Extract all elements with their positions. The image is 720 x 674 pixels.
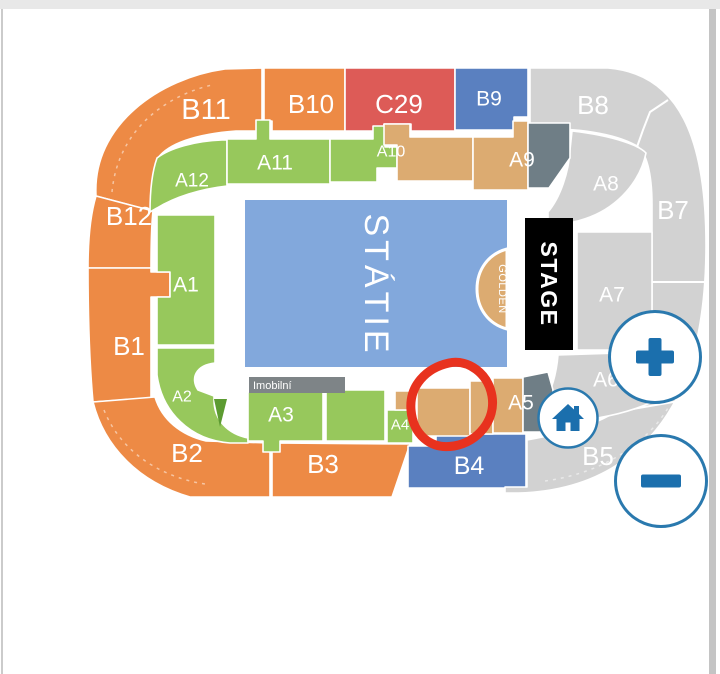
section-label-b4: B4 bbox=[454, 452, 485, 480]
section-label-b11: B11 bbox=[181, 94, 230, 126]
zoom-in-button[interactable] bbox=[610, 312, 701, 403]
section-label-b1: B1 bbox=[113, 331, 145, 361]
section-label-b12: B12 bbox=[106, 201, 152, 231]
section-label-a3: A3 bbox=[268, 404, 294, 427]
section-label-a8: A8 bbox=[593, 173, 619, 196]
top-edge-bar bbox=[0, 0, 720, 9]
section-label-a2: A2 bbox=[172, 389, 192, 406]
left-edge-line bbox=[1, 9, 3, 674]
statie-label: STÁTIE bbox=[357, 213, 395, 356]
section-label-b7: B7 bbox=[657, 195, 689, 225]
minus-icon bbox=[641, 475, 681, 488]
section-tan-circled-left[interactable] bbox=[417, 388, 470, 436]
section-label-a11: A11 bbox=[257, 152, 293, 175]
stage-label: STAGE bbox=[536, 241, 562, 326]
zoom-out-button[interactable] bbox=[616, 436, 707, 527]
section-a3-right[interactable] bbox=[326, 390, 385, 441]
section-label-a7: A7 bbox=[599, 284, 625, 307]
section-label-b2: B2 bbox=[171, 438, 203, 468]
section-label-b9: B9 bbox=[476, 88, 502, 111]
section-label-a4: A4 bbox=[391, 417, 409, 434]
section-label-a12: A12 bbox=[175, 171, 209, 192]
section-label-c29: C29 bbox=[375, 89, 423, 119]
scrollbar-track bbox=[709, 9, 716, 674]
seat-map-screen: B11 B10 C29 B9 B8 A12 A11 A10 A9 A8 B12 … bbox=[0, 0, 720, 674]
golden-label: GOLDEN bbox=[496, 264, 508, 313]
imobilni-label: Imobilní bbox=[253, 380, 292, 392]
section-label-b10: B10 bbox=[288, 89, 334, 119]
section-label-a5: A5 bbox=[508, 392, 534, 415]
section-label-a9: A9 bbox=[509, 149, 535, 172]
section-label-a10: A10 bbox=[377, 144, 406, 161]
venue-map: B11 B10 C29 B9 B8 A12 A11 A10 A9 A8 B12 … bbox=[0, 0, 720, 674]
section-b3[interactable] bbox=[272, 443, 410, 497]
section-label-a1: A1 bbox=[173, 274, 199, 297]
section-label-b8: B8 bbox=[577, 90, 609, 120]
section-label-b5: B5 bbox=[582, 441, 614, 471]
section-label-b3: B3 bbox=[307, 449, 339, 479]
home-button[interactable] bbox=[539, 389, 598, 448]
